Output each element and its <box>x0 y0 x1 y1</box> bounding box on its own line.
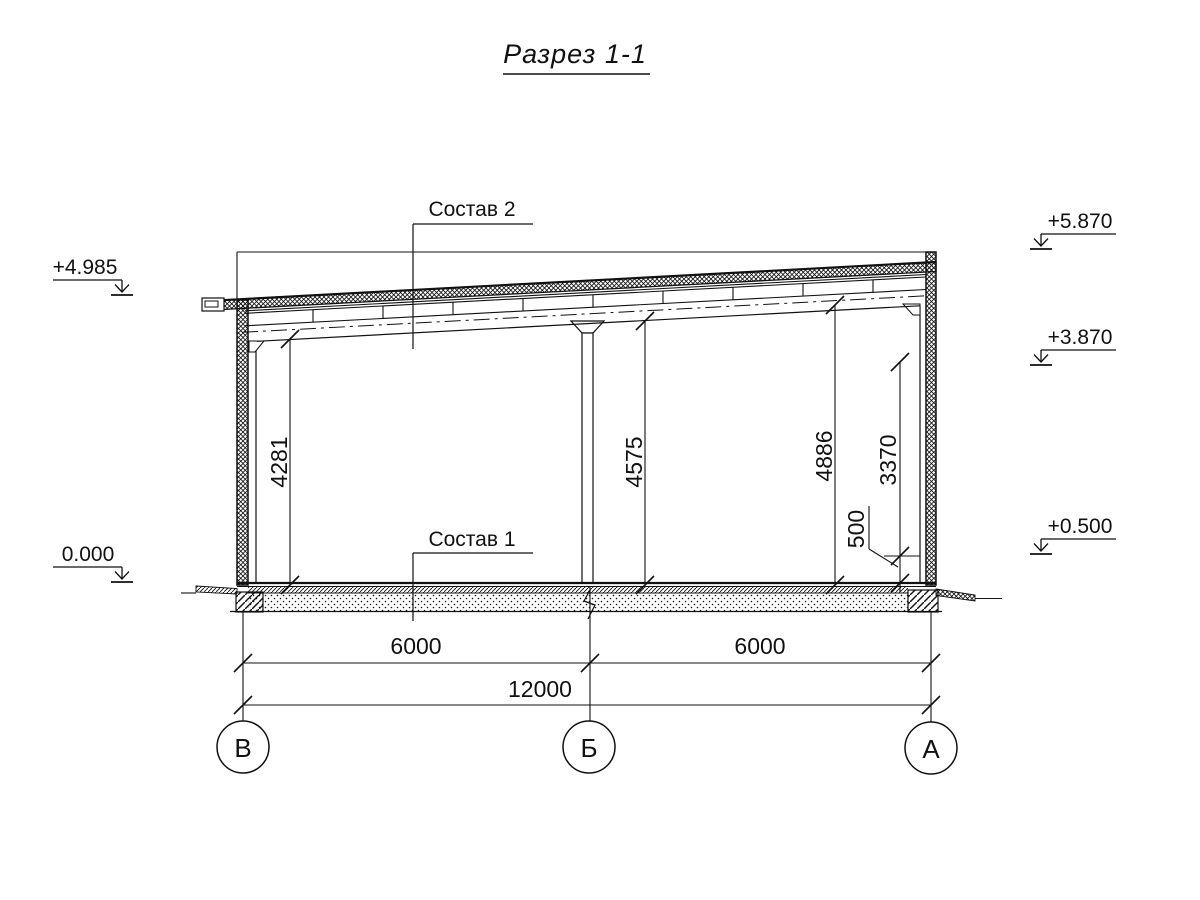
eave-end-cap-inner <box>205 301 218 307</box>
dimension-4575-value: 4575 <box>621 436 647 487</box>
drawing-sheet: Разрез 1-1 <box>0 0 1200 900</box>
right-foundation-block <box>908 590 938 612</box>
right-wall <box>903 252 936 585</box>
roof-insulation-band <box>205 262 936 310</box>
floor-slab <box>181 583 1002 619</box>
axis-bubbles: В Б А <box>217 721 957 774</box>
span-v-b-value: 6000 <box>390 633 441 659</box>
drawing-title: Разрез 1-1 <box>503 39 650 74</box>
middle-column <box>571 321 604 583</box>
dimension-4886-value: 4886 <box>811 430 837 481</box>
right-wall-panel <box>926 252 936 585</box>
column-shaft <box>582 333 593 583</box>
dimension-3370-value: 3370 <box>875 434 901 485</box>
dimension-500-value: 500 <box>843 510 869 548</box>
left-foundation-block <box>236 592 263 612</box>
elevation-left-roof-value: +4.985 <box>53 256 118 279</box>
elevation-mark-right-plinth: +0.500 <box>1030 515 1116 554</box>
elevation-left-floor-value: 0.000 <box>62 543 115 566</box>
section-title-text: Разрез 1-1 <box>503 39 647 69</box>
vertical-dimension-4575: 4575 <box>621 312 654 594</box>
dimension-4281-value: 4281 <box>266 436 292 487</box>
axis-v-label: В <box>234 733 251 763</box>
axis-b-label: Б <box>580 733 597 763</box>
elevation-right-plinth-value: +0.500 <box>1048 515 1113 538</box>
right-apron <box>936 589 975 601</box>
left-wall <box>237 300 264 585</box>
floor-base-layer <box>248 593 908 611</box>
elevation-mark-right-parapet: +5.870 <box>1030 210 1116 249</box>
floor-screed-layer <box>248 587 908 593</box>
total-span-value: 12000 <box>508 676 572 702</box>
elevation-mark-right-girt: +3.870 <box>1030 326 1116 365</box>
left-roof-bracket <box>249 341 264 352</box>
roof-assembly <box>202 262 936 341</box>
vertical-dimension-3370: 3370 <box>875 353 920 592</box>
vertical-dimension-4886: 4886 <box>811 296 844 594</box>
axis-a-label: А <box>922 734 940 764</box>
elevation-mark-left-roof: +4.985 <box>53 256 133 295</box>
elevation-right-parapet-value: +5.870 <box>1048 210 1113 233</box>
elevation-right-girt-value: +3.870 <box>1048 326 1113 349</box>
roof-composition-label: Состав 2 <box>428 198 515 221</box>
elevation-mark-left-floor: 0.000 <box>53 543 133 582</box>
vertical-dimension-4281: 4281 <box>266 330 299 594</box>
vertical-dimension-500: 500 <box>843 506 898 567</box>
section-drawing: Разрез 1-1 <box>0 0 1200 900</box>
left-wall-panel <box>237 300 248 585</box>
left-apron <box>196 586 237 594</box>
span-b-a-value: 6000 <box>734 633 785 659</box>
floor-composition-label: Состав 1 <box>428 528 515 551</box>
roof-composition-callout: Состав 2 <box>413 198 533 349</box>
